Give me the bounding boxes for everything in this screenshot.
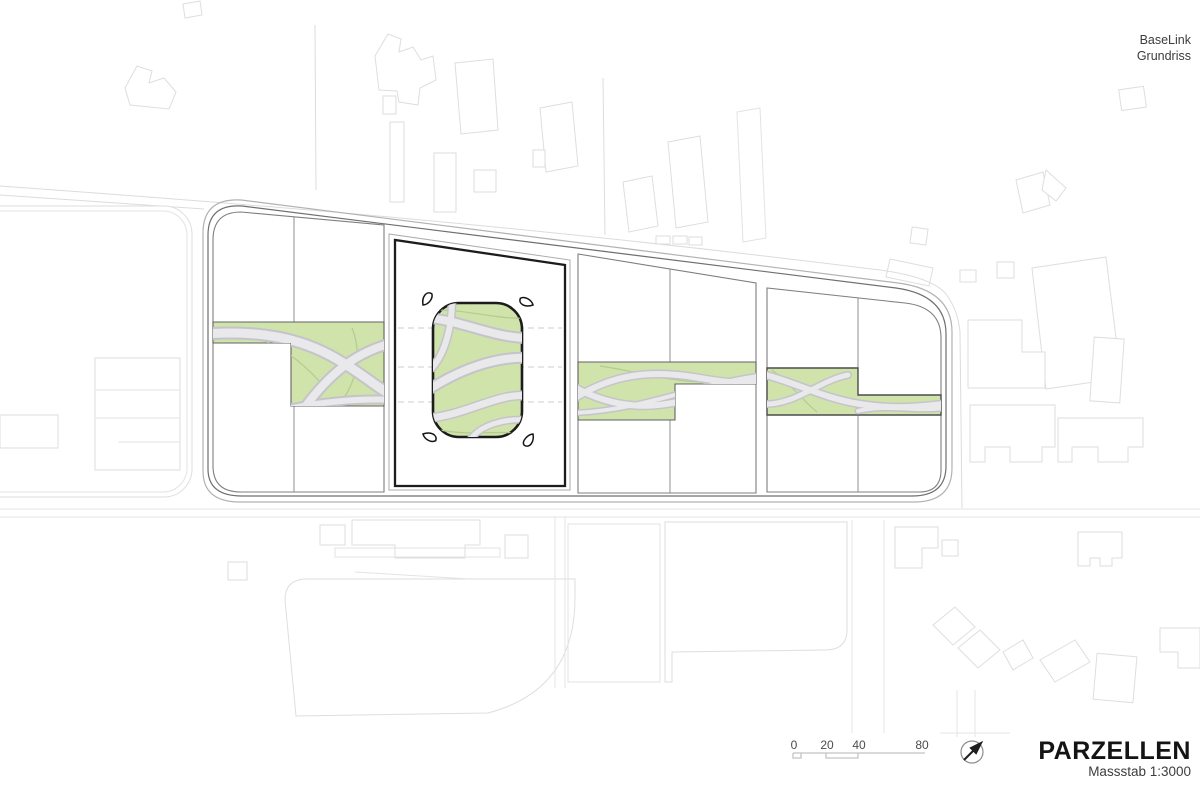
site-plan-canvas — [0, 0, 1200, 786]
scale-bar — [793, 753, 925, 758]
scale-label-40: 40 — [844, 738, 874, 752]
parcel-block-west — [205, 212, 400, 492]
parcel-block-east — [762, 288, 944, 492]
scale-note: Massstab 1:3000 — [1038, 764, 1191, 780]
drawing-type: Grundriss — [1137, 49, 1191, 65]
drawing-sheet: BaseLink Grundriss 0 20 40 80 PARZELLEN … — [0, 0, 1200, 786]
sheet-header: BaseLink Grundriss — [1137, 33, 1191, 64]
title-block: PARZELLEN Massstab 1:3000 — [1038, 738, 1191, 780]
central-parcel — [389, 234, 570, 490]
north-arrow-icon — [961, 741, 983, 763]
parcel-block-middle — [572, 254, 762, 493]
scale-label-20: 20 — [812, 738, 842, 752]
sheet-title: PARZELLEN — [1038, 738, 1191, 764]
courtyard-building — [428, 300, 530, 440]
scale-label-0: 0 — [779, 738, 809, 752]
scale-label-80: 80 — [907, 738, 937, 752]
project-name: BaseLink — [1137, 33, 1191, 49]
